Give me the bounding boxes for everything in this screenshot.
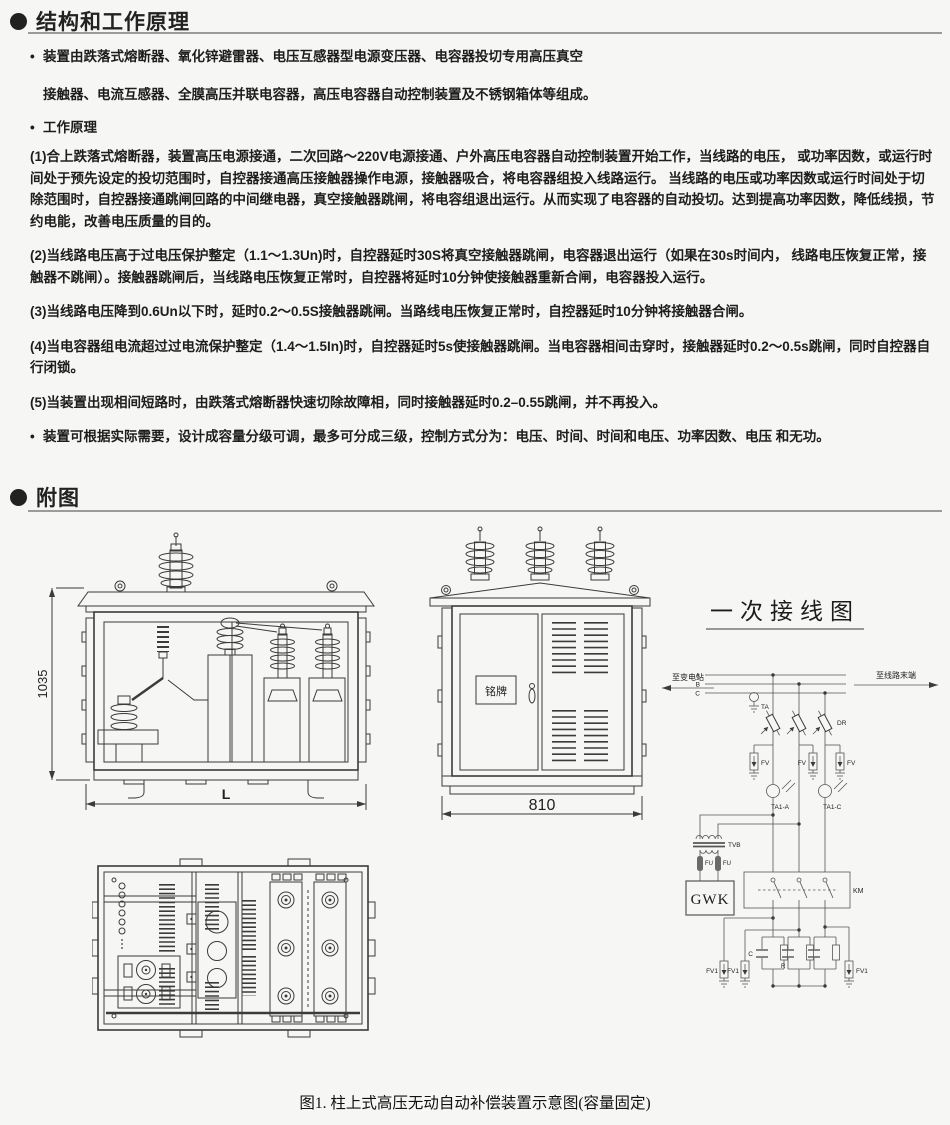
- section-underline: [28, 32, 942, 34]
- fu-label: FU: [705, 861, 713, 867]
- section-underline: [28, 510, 942, 512]
- phase-b-label: B: [696, 682, 700, 689]
- fv-label: FV: [847, 760, 856, 767]
- closing-note: 装置可根据实际需要，设计成容量分级可调，最多可分成三级，控制方式分为：电压、时间…: [43, 429, 830, 444]
- side-view-drawing: 铭牌 810: [428, 524, 656, 836]
- figures-section-title: 附图: [36, 482, 80, 512]
- paragraph-1: (1)合上跌落式熔断器，装置高压电源接通，二次回路～220V电源接通、户外高压电…: [30, 146, 936, 232]
- closing-bullet: •装置可根据实际需要，设计成容量分级可调，最多可分成三级，控制方式分为：电压、时…: [30, 426, 936, 448]
- top-view-drawing: [92, 856, 382, 1041]
- principle-intro: •装置由跌落式熔断器、氧化锌避雷器、电压互感器型电源变压器、电容器投切专用高压真…: [30, 46, 936, 155]
- fu-label: FU: [723, 861, 731, 867]
- front-view-drawing: 1035 L: [36, 530, 426, 835]
- front-height-dimension-label: 1035: [36, 670, 50, 699]
- tvb-label: TVB: [728, 842, 741, 849]
- wiring-diagram-title: 一次接线图: [710, 599, 860, 624]
- fv1-label: FV1: [706, 968, 718, 975]
- paragraph-2: (2)当线路电压高于过电压保护整定（1.1～1.3Un)时，自控器延时30S将真…: [30, 245, 936, 288]
- ta1-a-label: TA1-A: [771, 804, 790, 811]
- km-label: KM: [853, 888, 864, 895]
- primary-wiring-diagram: 一次接线图 至变电站 至线路末端 A B C TA: [650, 593, 950, 1008]
- paragraph-3: (3)当线路电压降到0.6Un以下时，延时0.2～0.5S接触器跳闸。当路线电压…: [30, 301, 936, 323]
- side-width-dimension-label: 810: [529, 797, 556, 814]
- phase-a-label: A: [696, 673, 701, 680]
- bullet-marker: •: [30, 46, 35, 68]
- section-bullet-icon: [10, 489, 27, 506]
- resistor-label: R: [781, 964, 786, 970]
- bullet-marker: •: [30, 117, 35, 139]
- ta1-c-label: TA1-C: [823, 804, 842, 811]
- fv-label: FV: [798, 760, 807, 767]
- phase-c-label: C: [695, 691, 700, 698]
- intro-bullet-2: •工作原理: [30, 117, 936, 139]
- to-line-end-label: 至线路末端: [876, 670, 916, 680]
- capacitor-bank: [756, 937, 840, 986]
- section-header-figures: 附图: [10, 482, 80, 512]
- intro-line-2: 接触器、电流互感器、全膜高压并联电容器，高压电容器自动控制装置及不锈钢箱体等组成…: [30, 84, 936, 106]
- fv1-label: FV1: [856, 968, 868, 975]
- figure-caption: 图1. 柱上式高压无动自动补偿装置示意图(容量固定): [0, 1091, 950, 1113]
- gwk-label: GWK: [691, 892, 730, 908]
- front-width-dimension-label: L: [222, 786, 231, 802]
- nameplate-label: 铭牌: [485, 684, 507, 698]
- section-bullet-icon: [10, 13, 27, 30]
- intro-bullet-1: •装置由跌落式熔断器、氧化锌避雷器、电压互感器型电源变压器、电容器投切专用高压真…: [30, 46, 936, 68]
- dr-label: DR: [837, 720, 847, 727]
- fv-label: FV: [761, 760, 770, 767]
- paragraph-5: (5)当装置出现相间短路时，由跌落式熔断器快速切除故障相，同时接触器延时0.2–…: [30, 392, 936, 414]
- ta-label: TA: [761, 704, 769, 711]
- fv1-label: FV1: [727, 968, 739, 975]
- principle-paragraphs: (1)合上跌落式熔断器，装置高压电源接通，二次回路～220V电源接通、户外高压电…: [30, 146, 936, 461]
- bullet-marker: •: [30, 426, 35, 448]
- intro-line-1: 装置由跌落式熔断器、氧化锌避雷器、电压互感器型电源变压器、电容器投切专用高压真空: [43, 49, 583, 64]
- paragraph-4: (4)当电容器组电流超过过电流保护整定（1.4～1.5In)时，自控器延时5s使…: [30, 336, 936, 379]
- working-principle-label: 工作原理: [43, 120, 97, 135]
- capacitor-label: C: [748, 951, 753, 958]
- document-page: 结构和工作原理 •装置由跌落式熔断器、氧化锌避雷器、电压互感器型电源变压器、电容…: [0, 0, 950, 1125]
